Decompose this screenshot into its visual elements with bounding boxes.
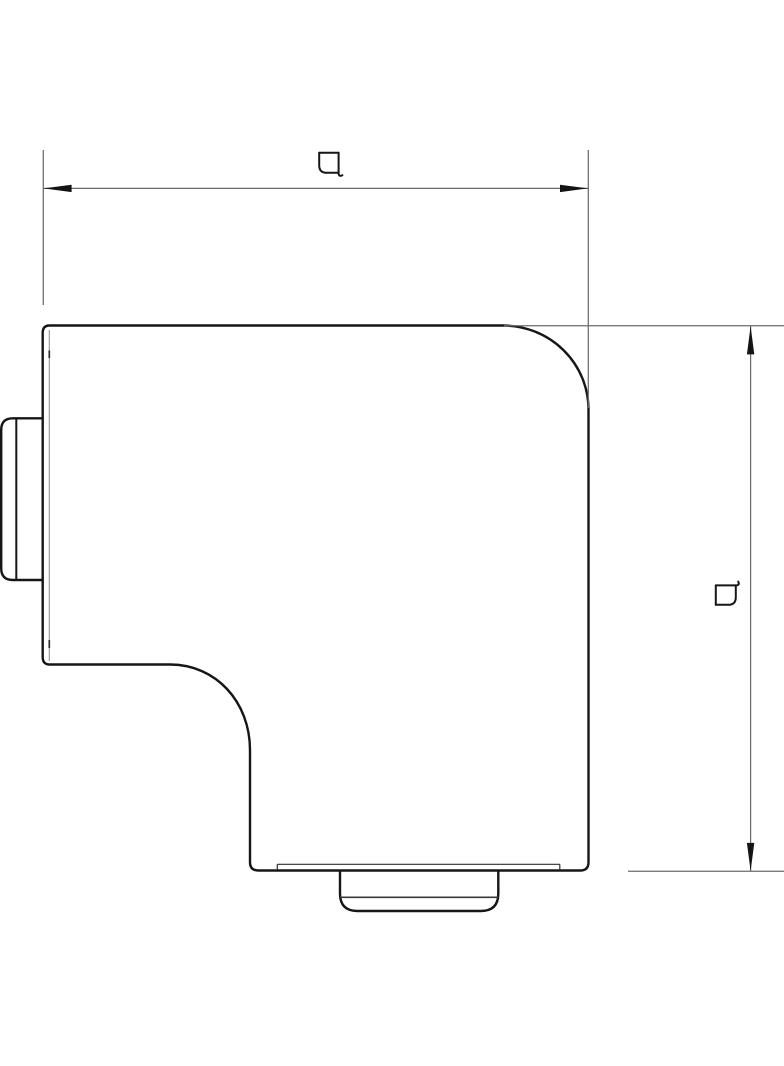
- vertical-dimension-arrow-bottom-icon: [747, 843, 754, 871]
- bottom-connector-spigot: [340, 871, 498, 912]
- letter-a-glyph-rotated: [714, 580, 741, 607]
- flat-angle-drawing: [0, 0, 784, 1066]
- horizontal-dimension-arrow-right-icon: [560, 185, 588, 192]
- letter-a-glyph: [317, 151, 344, 178]
- vertical-dimension-arrow-top-icon: [747, 326, 754, 354]
- technical-drawing-canvas: a a: [0, 0, 784, 1066]
- horizontal-dimension-label: a: [317, 151, 344, 178]
- vertical-dimension-label: a: [714, 580, 741, 607]
- horizontal-dimension-arrow-left-icon: [44, 185, 72, 192]
- body-outline: [43, 326, 589, 871]
- part-geometry: [1, 326, 588, 912]
- left-connector-nub: [1, 418, 43, 580]
